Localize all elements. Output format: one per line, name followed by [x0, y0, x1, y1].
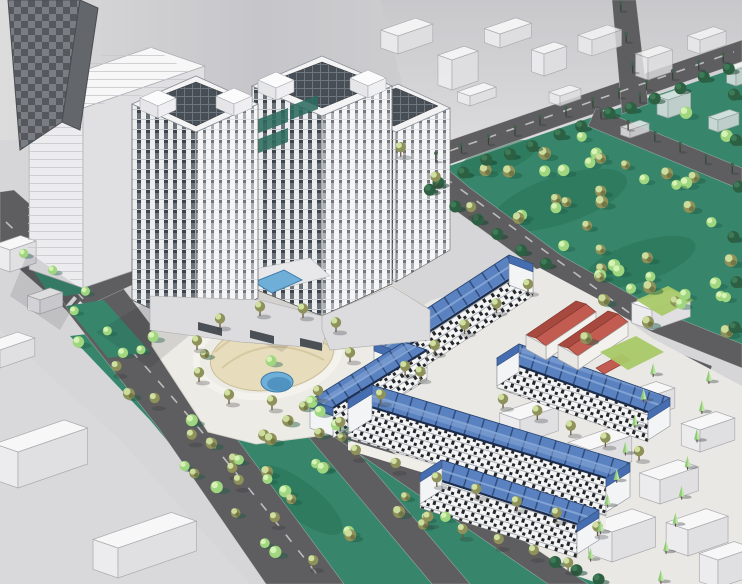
- tower-left: [132, 76, 258, 330]
- rendering-canvas: [0, 0, 742, 584]
- highrise-cluster: [96, 56, 450, 368]
- plaza-pond-deep: [267, 377, 291, 391]
- architectural-rendering: [0, 0, 742, 584]
- context-building-face: [438, 55, 452, 90]
